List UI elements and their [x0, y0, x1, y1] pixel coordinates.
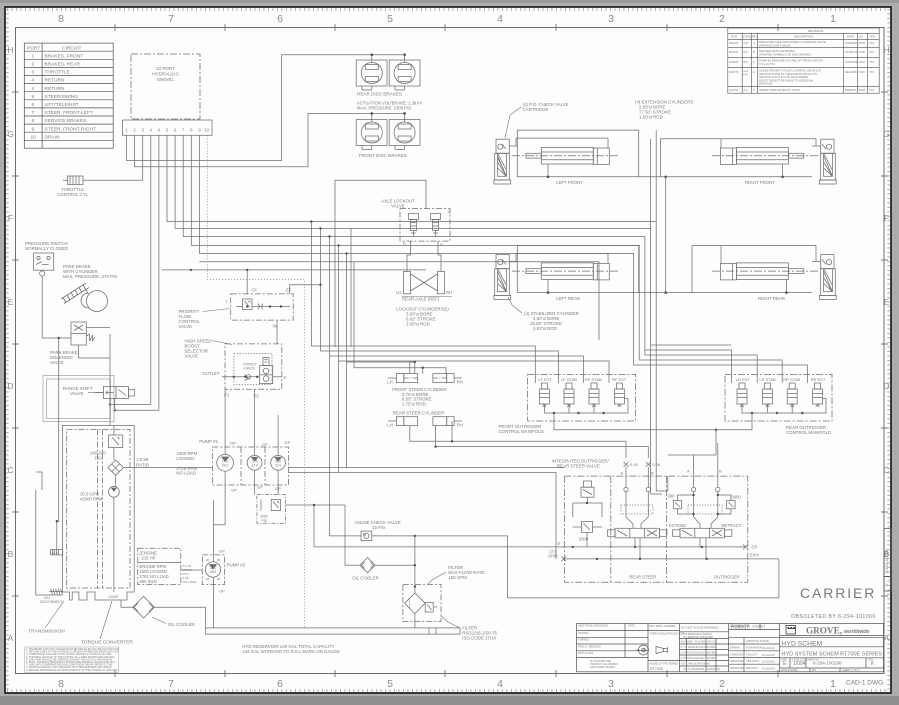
- svg-text:20.0: 20.0: [275, 463, 281, 467]
- svg-text:02.0: 02.0: [222, 463, 228, 467]
- svg-text:RETURN: RETURN: [45, 86, 66, 92]
- svg-text:1.50"ø ROD: 1.50"ø ROD: [639, 115, 663, 120]
- svg-text:EXTEND: EXTEND: [669, 523, 686, 528]
- svg-text:2-B: 2-B: [744, 41, 748, 45]
- svg-text:DRAWN: DRAWN: [730, 646, 740, 650]
- svg-text:H: H: [7, 45, 13, 55]
- svg-text:D-6: D-6: [744, 72, 749, 76]
- svg-text:HYD SYSTEM SCHEM RT700E SERIES: HYD SYSTEM SCHEM RT700E SERIES: [782, 652, 883, 658]
- svg-text:LEFT REAR: LEFT REAR: [556, 296, 580, 301]
- svg-text:worldwide: worldwide: [844, 629, 869, 635]
- svg-text:TFC: TFC: [869, 41, 874, 45]
- svg-text:OIL COOLER: OIL COOLER: [168, 622, 195, 627]
- svg-text:A-5: A-5: [744, 50, 749, 54]
- svg-text:OBSOLETED BY 6-294-101066: OBSOLETED BY 6-294-101066: [791, 614, 876, 620]
- svg-text:2: 2: [719, 13, 725, 25]
- svg-text:DSO: DSO: [859, 60, 866, 64]
- svg-text:.017: .017: [681, 662, 687, 666]
- svg-text:4: 4: [32, 78, 35, 84]
- svg-text:C: C: [448, 210, 451, 215]
- svg-text:APD: APD: [870, 35, 876, 39]
- svg-text:CP: CP: [752, 545, 758, 550]
- svg-text:A-1: A-1: [744, 88, 749, 92]
- svg-text:X ? #: X ? #: [681, 645, 688, 649]
- svg-text:D: D: [884, 584, 889, 587]
- svg-text:SCALE: SCALE: [781, 668, 790, 672]
- svg-text:01-JUN-00: 01-JUN-00: [762, 653, 775, 657]
- svg-text:3: 3: [608, 678, 614, 690]
- svg-text:RR STAB: RR STAB: [783, 377, 800, 382]
- svg-text:LH: LH: [396, 290, 401, 295]
- svg-text:01-JUN-00: 01-JUN-00: [762, 660, 775, 664]
- svg-text:FRONT DISC BRAKES: FRONT DISC BRAKES: [359, 153, 407, 158]
- svg-text:25: 25: [434, 605, 438, 609]
- svg-text:CARTRIDGE: CARTRIDGE: [523, 107, 549, 112]
- svg-text:A: A: [687, 469, 690, 474]
- svg-text:IN: IN: [273, 324, 277, 329]
- svg-text:REAR AXLE (REF): REAR AXLE (REF): [402, 297, 440, 302]
- svg-text:F.ELLIOT: F.ELLIOT: [746, 652, 757, 656]
- svg-text:8: 8: [58, 13, 64, 25]
- svg-text:REAR STEER: REAR STEER: [629, 575, 656, 580]
- svg-text:15 PSI: 15 PSI: [372, 525, 385, 530]
- svg-text:BY: BY: [860, 35, 864, 39]
- svg-text:GP: GP: [262, 442, 268, 447]
- svg-text:OTHERWISE SPECIFIED: OTHERWISE SPECIFIED: [683, 635, 713, 639]
- svg-text:REVISIONS: REVISIONS: [808, 29, 823, 33]
- svg-text:B: B: [403, 242, 406, 247]
- svg-text:#0.2MM: #0.2MM: [707, 656, 716, 660]
- svg-text:LR STAB: LR STAB: [759, 377, 776, 382]
- svg-text:193751: 193751: [729, 88, 739, 92]
- svg-text:B: B: [651, 471, 654, 476]
- svg-text:TFC: TFC: [869, 70, 874, 74]
- svg-text:BAILDON: BAILDON: [746, 666, 758, 670]
- svg-text:DWT CLASS: DWT CLASS: [578, 651, 593, 655]
- svg-text:BAW: BAW: [859, 88, 866, 92]
- svg-text:LIFT/TELE/HST: LIFT/TELE/HST: [45, 102, 79, 108]
- svg-text:124079: 124079: [729, 60, 739, 64]
- svg-text:SSO: SSO: [859, 70, 866, 74]
- svg-text:THROTTLE: THROTTLE: [45, 70, 70, 76]
- svg-text:GP: GP: [219, 549, 225, 554]
- svg-text:A: A: [8, 633, 14, 643]
- svg-text:VALVE: VALVE: [70, 391, 84, 396]
- svg-text:LOADED: LOADED: [176, 456, 194, 461]
- svg-text:P: P: [558, 542, 561, 547]
- svg-text:N/A TO MATERIAL THICKNESS: N/A TO MATERIAL THICKNESS: [683, 667, 721, 671]
- svg-text:2500: 2500: [579, 537, 589, 542]
- svg-text:G: G: [753, 70, 755, 74]
- svg-text:SERVICE BRAKES: SERVICE BRAKES: [45, 118, 87, 124]
- svg-text:REAR STEER CYLINDER: REAR STEER CYLINDER: [393, 410, 444, 415]
- svg-text:8: 8: [58, 678, 64, 690]
- svg-text:P1: P1: [224, 393, 230, 398]
- svg-text:F: F: [884, 213, 889, 223]
- svg-text:ECN: ECN: [731, 35, 737, 39]
- svg-text:ANGULAR DIM: ANGULAR DIM: [688, 662, 706, 666]
- svg-text:6-294-100298: 6-294-100298: [885, 549, 889, 573]
- svg-text:3.62"ø ROD: 3.62"ø ROD: [533, 326, 557, 331]
- svg-text:7: 7: [168, 13, 174, 25]
- svg-text:RF STAB: RF STAB: [585, 377, 602, 382]
- svg-text:APPROVED: APPROVED: [730, 659, 745, 663]
- svg-text:3.00"ø ROD: 3.00"ø ROD: [406, 322, 430, 327]
- svg-text:SUMP: SUMP: [109, 595, 120, 599]
- svg-text:4: 4: [497, 13, 503, 25]
- svg-text:WALLS / WELDING: WALLS / WELDING: [578, 644, 601, 648]
- svg-text:DATE: DATE: [847, 35, 854, 39]
- svg-text:RIGHT REAR: RIGHT REAR: [758, 296, 785, 301]
- svg-text:RH: RH: [457, 423, 463, 428]
- svg-text:150 GPM: 150 GPM: [448, 575, 467, 580]
- svg-text:2: 2: [32, 62, 35, 68]
- svg-text:9-PRE800: 9-PRE800: [845, 41, 858, 45]
- svg-text:215 HP: 215 HP: [142, 556, 156, 561]
- svg-text:CHECKED: CHECKED: [730, 652, 743, 656]
- svg-text:1: 1: [830, 13, 836, 25]
- svg-text:2 PLACE DEC: 2 PLACE DEC: [688, 651, 705, 655]
- svg-text:A: A: [440, 242, 443, 247]
- svg-text:RH: RH: [457, 380, 463, 385]
- svg-text:MAX. PRESSURE: 2300 PSI: MAX. PRESSURE: 2300 PSI: [357, 106, 411, 111]
- svg-text:CF: CF: [252, 288, 258, 293]
- svg-text:DETAILED: DETAILED: [759, 82, 772, 86]
- svg-text:NONE: NONE: [790, 668, 798, 672]
- svg-text:A: A: [621, 471, 624, 476]
- svg-text:CARRIER: CARRIER: [800, 585, 876, 601]
- svg-text:B-6: B-6: [744, 60, 749, 64]
- svg-text:E: E: [8, 297, 14, 307]
- svg-text:GPM: GPM: [548, 554, 558, 559]
- svg-text:0.06: 0.06: [653, 462, 662, 467]
- svg-text:B: B: [753, 50, 755, 54]
- svg-text:EXH: EXH: [750, 553, 759, 558]
- svg-text:W/RANGE SHIFT VALVE: W/RANGE SHIFT VALVE: [759, 43, 791, 47]
- svg-text:9. BEFORE PERFORMING OR ADJUST: 9. BEFORE PERFORMING OR ADJUSTMENTS OF T…: [26, 669, 119, 672]
- svg-text:H: H: [883, 45, 889, 55]
- svg-text:#2000 RPM: #2000 RPM: [80, 497, 103, 502]
- svg-text:193776: 193776: [729, 70, 739, 74]
- svg-text:01-JUN-00: 01-JUN-00: [762, 666, 775, 670]
- svg-text:TFC: TFC: [869, 60, 874, 64]
- svg-text:OUTRIGGER: OUTRIGGER: [714, 575, 739, 580]
- svg-text:HYD SCHEM: HYD SCHEM: [782, 641, 823, 648]
- svg-text:FIELD: FIELD: [50, 551, 58, 555]
- svg-text:RF EXT: RF EXT: [612, 377, 627, 382]
- svg-text:LF STAB: LF STAB: [561, 377, 577, 382]
- svg-text:STEER, FRONT-RIGHT: STEER, FRONT-RIGHT: [45, 126, 97, 132]
- svg-text:3 PLACE DEC: 3 PLACE DEC: [688, 656, 705, 660]
- svg-text:GP: GP: [275, 486, 281, 491]
- svg-text:ISO CODE 17/14: ISO CODE 17/14: [462, 636, 496, 641]
- svg-text:10: 10: [204, 128, 209, 133]
- svg-text:NORMALLY CLOSED: NORMALLY CLOSED: [25, 246, 68, 251]
- svg-text:F: F: [8, 213, 13, 223]
- svg-text:28.8: 28.8: [210, 570, 216, 574]
- svg-text:5: 5: [387, 13, 393, 25]
- svg-text:TORQUE CONVERTER: TORQUE CONVERTER: [81, 640, 133, 646]
- svg-text:D: D: [7, 381, 13, 391]
- svg-text:CONTROL MANIFOLD: CONTROL MANIFOLD: [499, 429, 544, 434]
- svg-text:8: 8: [32, 118, 35, 124]
- svg-text:10 PORT: 10 PORT: [156, 66, 175, 71]
- svg-text:GP: GP: [257, 485, 263, 490]
- svg-text:LH: LH: [387, 380, 392, 385]
- svg-text:D: D: [883, 381, 889, 391]
- svg-text:6: 6: [32, 102, 35, 108]
- svg-text:10: 10: [31, 134, 37, 140]
- svg-text:3000: 3000: [732, 495, 742, 500]
- svg-text:LH: LH: [387, 423, 392, 428]
- svg-text:NO LOAD: NO LOAD: [176, 471, 196, 476]
- svg-text:CIRCUIT: CIRCUIT: [62, 45, 82, 51]
- svg-text:B: B: [719, 469, 722, 474]
- svg-text:SHEET 1 OF 1: SHEET 1 OF 1: [842, 668, 860, 672]
- svg-text:EF: EF: [286, 288, 292, 293]
- svg-text:RT700E: RT700E: [650, 667, 664, 671]
- svg-text:1: 1: [32, 53, 35, 59]
- svg-text:APPROVALS: APPROVALS: [746, 639, 762, 643]
- svg-text:7: 7: [168, 678, 174, 690]
- svg-text:300: 300: [668, 494, 676, 499]
- svg-text:5: 5: [387, 678, 393, 690]
- svg-text:TFC: TFC: [869, 88, 874, 92]
- svg-text:CAD-1 DWG: CAD-1 DWG: [846, 680, 883, 687]
- svg-text:MAX. PRESSURE: 270 PSI: MAX. PRESSURE: 270 PSI: [63, 274, 117, 279]
- svg-text:WHOLE # PLCS: WHOLE # PLCS: [688, 645, 707, 649]
- svg-text:LR EXT: LR EXT: [736, 377, 751, 382]
- svg-text:GP: GP: [219, 589, 225, 594]
- svg-text:5: 5: [32, 94, 35, 100]
- svg-text:DATE: DATE: [762, 639, 769, 643]
- svg-text:DO NOT SCALE DRAWING: DO NOT SCALE DRAWING: [681, 626, 719, 630]
- svg-text:4: 4: [497, 678, 503, 690]
- svg-text:CVB: CVB: [859, 50, 865, 54]
- svg-text:OUTLET: OUTLET: [202, 371, 220, 376]
- svg-text:AND SHARP EDGES: AND SHARP EDGES: [590, 665, 615, 669]
- svg-text:REV: REV: [752, 35, 758, 39]
- svg-text:RIGHT FRONT: RIGHT FRONT: [745, 180, 775, 185]
- svg-text:RETRACT: RETRACT: [722, 523, 742, 528]
- svg-text:T.BILLSON: T.BILLSON: [746, 659, 759, 663]
- svg-text:F: F: [753, 60, 755, 64]
- svg-text:RETURN: RETURN: [45, 78, 66, 84]
- svg-text:COW4000: COW4000: [845, 60, 859, 64]
- svg-text:ADDED OBSOLETED BY NOTE: ADDED OBSOLETED BY NOTE: [759, 88, 800, 92]
- svg-text:GP: GP: [231, 488, 237, 493]
- svg-text:K: K: [753, 88, 755, 92]
- svg-text:VALVE: VALVE: [185, 354, 199, 359]
- svg-text:PORT: PORT: [27, 45, 40, 51]
- svg-text:1700307: 1700307: [752, 625, 765, 629]
- svg-text:17.0: 17.0: [251, 463, 257, 467]
- svg-text:1/094: 1/094: [793, 661, 806, 667]
- svg-text:#1.5MM: #1.5MM: [707, 645, 716, 649]
- svg-text:DEC. PLACES: DEC. PLACES: [688, 640, 705, 644]
- svg-text:NO LOAD: NO LOAD: [183, 580, 198, 584]
- svg-text:OIL COOLER: OIL COOLER: [352, 576, 379, 581]
- svg-text:R.SHAWVER: R.SHAWVER: [746, 646, 762, 650]
- svg-text:1.75"ø ROD: 1.75"ø ROD: [402, 401, 426, 406]
- svg-text:ZONE: ZONE: [743, 35, 751, 39]
- svg-text:LF EXT: LF EXT: [538, 377, 552, 382]
- svg-text:CONTROL MANIFOLD: CONTROL MANIFOLD: [786, 430, 831, 435]
- svg-text:4: 4: [32, 86, 35, 92]
- svg-text:950 IDLE: 950 IDLE: [140, 579, 158, 584]
- svg-text:STEER/SWING: STEER/SWING: [45, 94, 79, 100]
- svg-text:DESCRIPTION: DESCRIPTION: [794, 35, 813, 39]
- svg-text:RH: RH: [446, 290, 452, 295]
- svg-text:DATE: DATE: [628, 624, 635, 628]
- svg-text:3: 3: [608, 13, 614, 25]
- svg-text:BRAKES, FRONT: BRAKES, FRONT: [45, 53, 84, 59]
- svg-text:UPDATED SYMBOLS OF DISC BRAKES: UPDATED SYMBOLS OF DISC BRAKES: [759, 52, 811, 56]
- svg-text:6-294-100298: 6-294-100298: [813, 661, 842, 666]
- svg-text:RATIO: RATIO: [136, 463, 150, 468]
- svg-text:200403: 200403: [729, 41, 739, 45]
- svg-text:3: 3: [32, 70, 35, 76]
- svg-text:PSI: PSI: [261, 519, 267, 523]
- svg-text:SWIVEL: SWIVEL: [157, 77, 175, 82]
- svg-text:DSO: DSO: [859, 41, 866, 45]
- svg-text:STL60700: STL60700: [845, 50, 858, 54]
- svg-text:MODEL STYPE SERIES: MODEL STYPE SERIES: [650, 662, 679, 666]
- svg-text:R08007: R08007: [731, 624, 749, 630]
- svg-text:RR EXT: RR EXT: [811, 377, 826, 382]
- svg-text:DEL49811: DEL49811: [845, 70, 858, 74]
- svg-text:G: G: [883, 129, 890, 139]
- svg-text:B: B: [8, 549, 14, 559]
- svg-text:GP: GP: [285, 440, 291, 445]
- svg-text:6: 6: [277, 13, 283, 25]
- svg-text:VALVE: VALVE: [179, 324, 193, 329]
- svg-text:NOTARY: NOTARY: [578, 631, 589, 635]
- svg-text:E: E: [884, 297, 890, 307]
- svg-text:DISCONNECT: DISCONNECT: [40, 600, 62, 604]
- svg-text:#0.7MM: #0.7MM: [707, 651, 716, 655]
- svg-text:ADDITIONAL DRAWINGS: ADDITIONAL DRAWINGS: [578, 624, 609, 628]
- svg-text:7: 7: [32, 110, 35, 116]
- svg-text:VALVE: VALVE: [50, 360, 64, 365]
- svg-text:MF'L SPEC. NUMBER: MF'L SPEC. NUMBER: [650, 624, 676, 628]
- svg-text:9: 9: [32, 126, 35, 132]
- svg-text:G: G: [7, 129, 14, 139]
- svg-text:1:0.98: 1:0.98: [136, 457, 149, 462]
- svg-text:000191: 000191: [729, 50, 739, 54]
- svg-text:A: A: [884, 633, 890, 643]
- svg-text:#1': #1': [707, 662, 711, 666]
- svg-text:THIRD ANGLE PROJECTION: THIRD ANGLE PROJECTION: [650, 632, 685, 636]
- svg-text:LEFT FRONT: LEFT FRONT: [556, 180, 583, 185]
- svg-text:PUMP #2: PUMP #2: [227, 563, 246, 568]
- svg-text:A: A: [753, 41, 755, 45]
- svg-text:BRAKES, REAR: BRAKES, REAR: [45, 62, 81, 68]
- svg-text:CONTROL CYL.: CONTROL CYL.: [57, 192, 89, 197]
- svg-text:0.06: 0.06: [630, 462, 639, 467]
- svg-text:HYDRAULIC: HYDRAULIC: [152, 72, 179, 77]
- svg-text:WT: WT: [812, 668, 816, 672]
- svg-text:GP: GP: [230, 441, 236, 446]
- svg-text:C: C: [7, 465, 13, 475]
- svg-text:PSI: PSI: [95, 456, 102, 461]
- svg-text:VALVE: VALVE: [391, 204, 405, 209]
- svg-text:C: C: [883, 465, 889, 475]
- svg-text:APPROVED: APPROVED: [730, 666, 745, 670]
- svg-text:1: 1: [830, 678, 836, 690]
- svg-text:TRANSMISSION: TRANSMISSION: [28, 629, 65, 635]
- svg-text:CHECK: CHECK: [244, 366, 256, 370]
- svg-text:134 GAL WORKING TO FULL MARK O: 134 GAL WORKING TO FULL MARK ON GAUGE: [242, 649, 340, 654]
- svg-text:P2: P2: [254, 394, 260, 399]
- svg-text:AN G.W.: AN G.W.: [707, 640, 717, 644]
- svg-text:6: 6: [277, 678, 283, 690]
- svg-text:T: T: [225, 300, 228, 305]
- svg-text:STEER, FRONT-LEFT: STEER, FRONT-LEFT: [45, 110, 93, 116]
- svg-text:TO 1-20 PSI: TO 1-20 PSI: [759, 62, 775, 66]
- svg-text:DRAIN: DRAIN: [45, 134, 60, 140]
- svg-text:TURNED: TURNED: [578, 638, 589, 642]
- svg-text:TFC: TFC: [869, 50, 874, 54]
- svg-text:05-JAN-01: 05-JAN-01: [762, 646, 775, 650]
- svg-text:2: 2: [719, 678, 725, 690]
- svg-text:PUMP #1: PUMP #1: [199, 439, 218, 444]
- svg-text:GROVE,: GROVE,: [806, 625, 842, 635]
- svg-text:REAR DISC BRAKES: REAR DISC BRAKES: [357, 92, 402, 97]
- svg-text:5AB0917: 5AB0917: [845, 88, 857, 92]
- svg-text:B: B: [284, 375, 287, 380]
